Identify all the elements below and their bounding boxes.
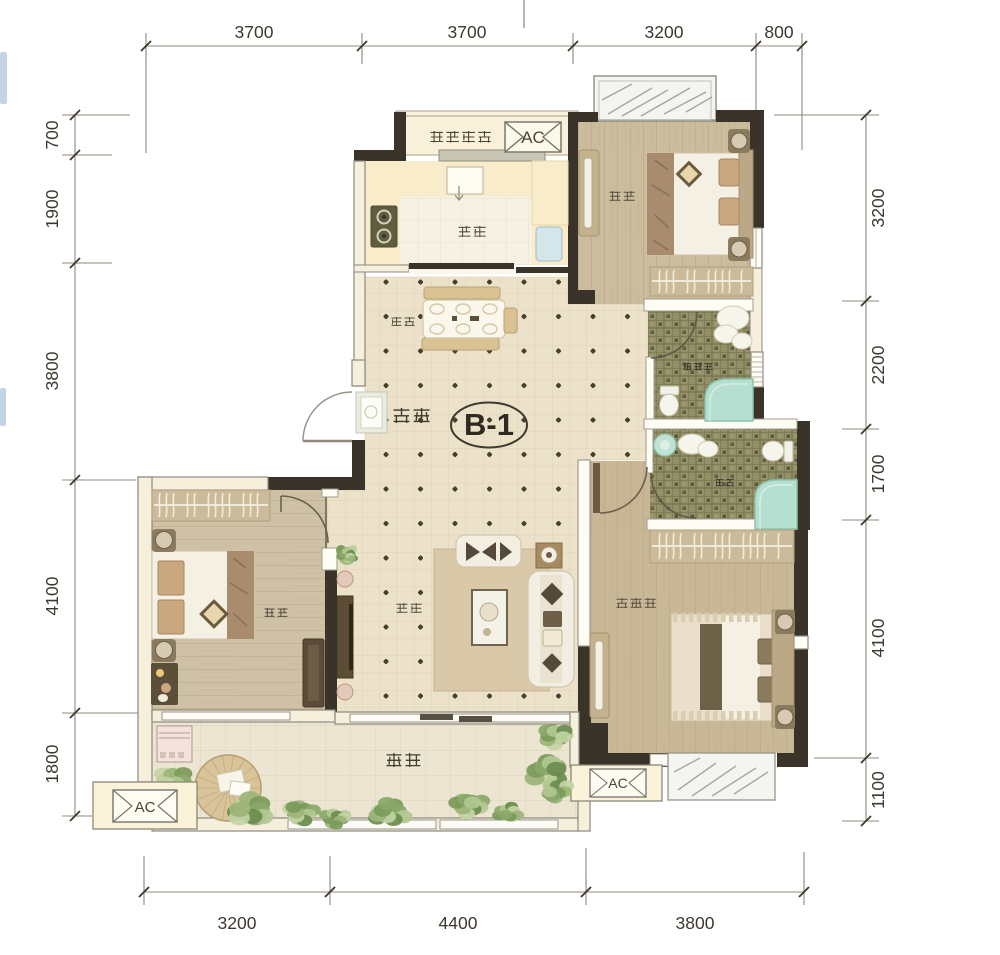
svg-text:3700: 3700 xyxy=(235,22,274,42)
svg-text:AC: AC xyxy=(608,775,627,791)
svg-text:3200: 3200 xyxy=(868,188,888,227)
svg-text:700: 700 xyxy=(42,120,62,149)
svg-text:3200: 3200 xyxy=(218,913,257,933)
svg-text:1800: 1800 xyxy=(42,744,62,783)
svg-text:AC: AC xyxy=(135,799,156,816)
svg-text:4400: 4400 xyxy=(439,913,478,933)
svg-text:1700: 1700 xyxy=(868,454,888,493)
svg-text:3700: 3700 xyxy=(448,22,487,42)
svg-text:1100: 1100 xyxy=(868,771,888,809)
svg-text:800: 800 xyxy=(764,22,793,42)
svg-text:4100: 4100 xyxy=(42,576,62,615)
svg-text:AC: AC xyxy=(521,128,545,147)
svg-text:3200: 3200 xyxy=(645,22,684,42)
svg-text:4100: 4100 xyxy=(868,618,888,657)
svg-text:3800: 3800 xyxy=(676,913,715,933)
svg-text:B-1: B-1 xyxy=(464,407,514,442)
svg-text:1900: 1900 xyxy=(42,189,62,228)
svg-text:3800: 3800 xyxy=(42,351,62,390)
svg-text:2200: 2200 xyxy=(868,345,888,384)
